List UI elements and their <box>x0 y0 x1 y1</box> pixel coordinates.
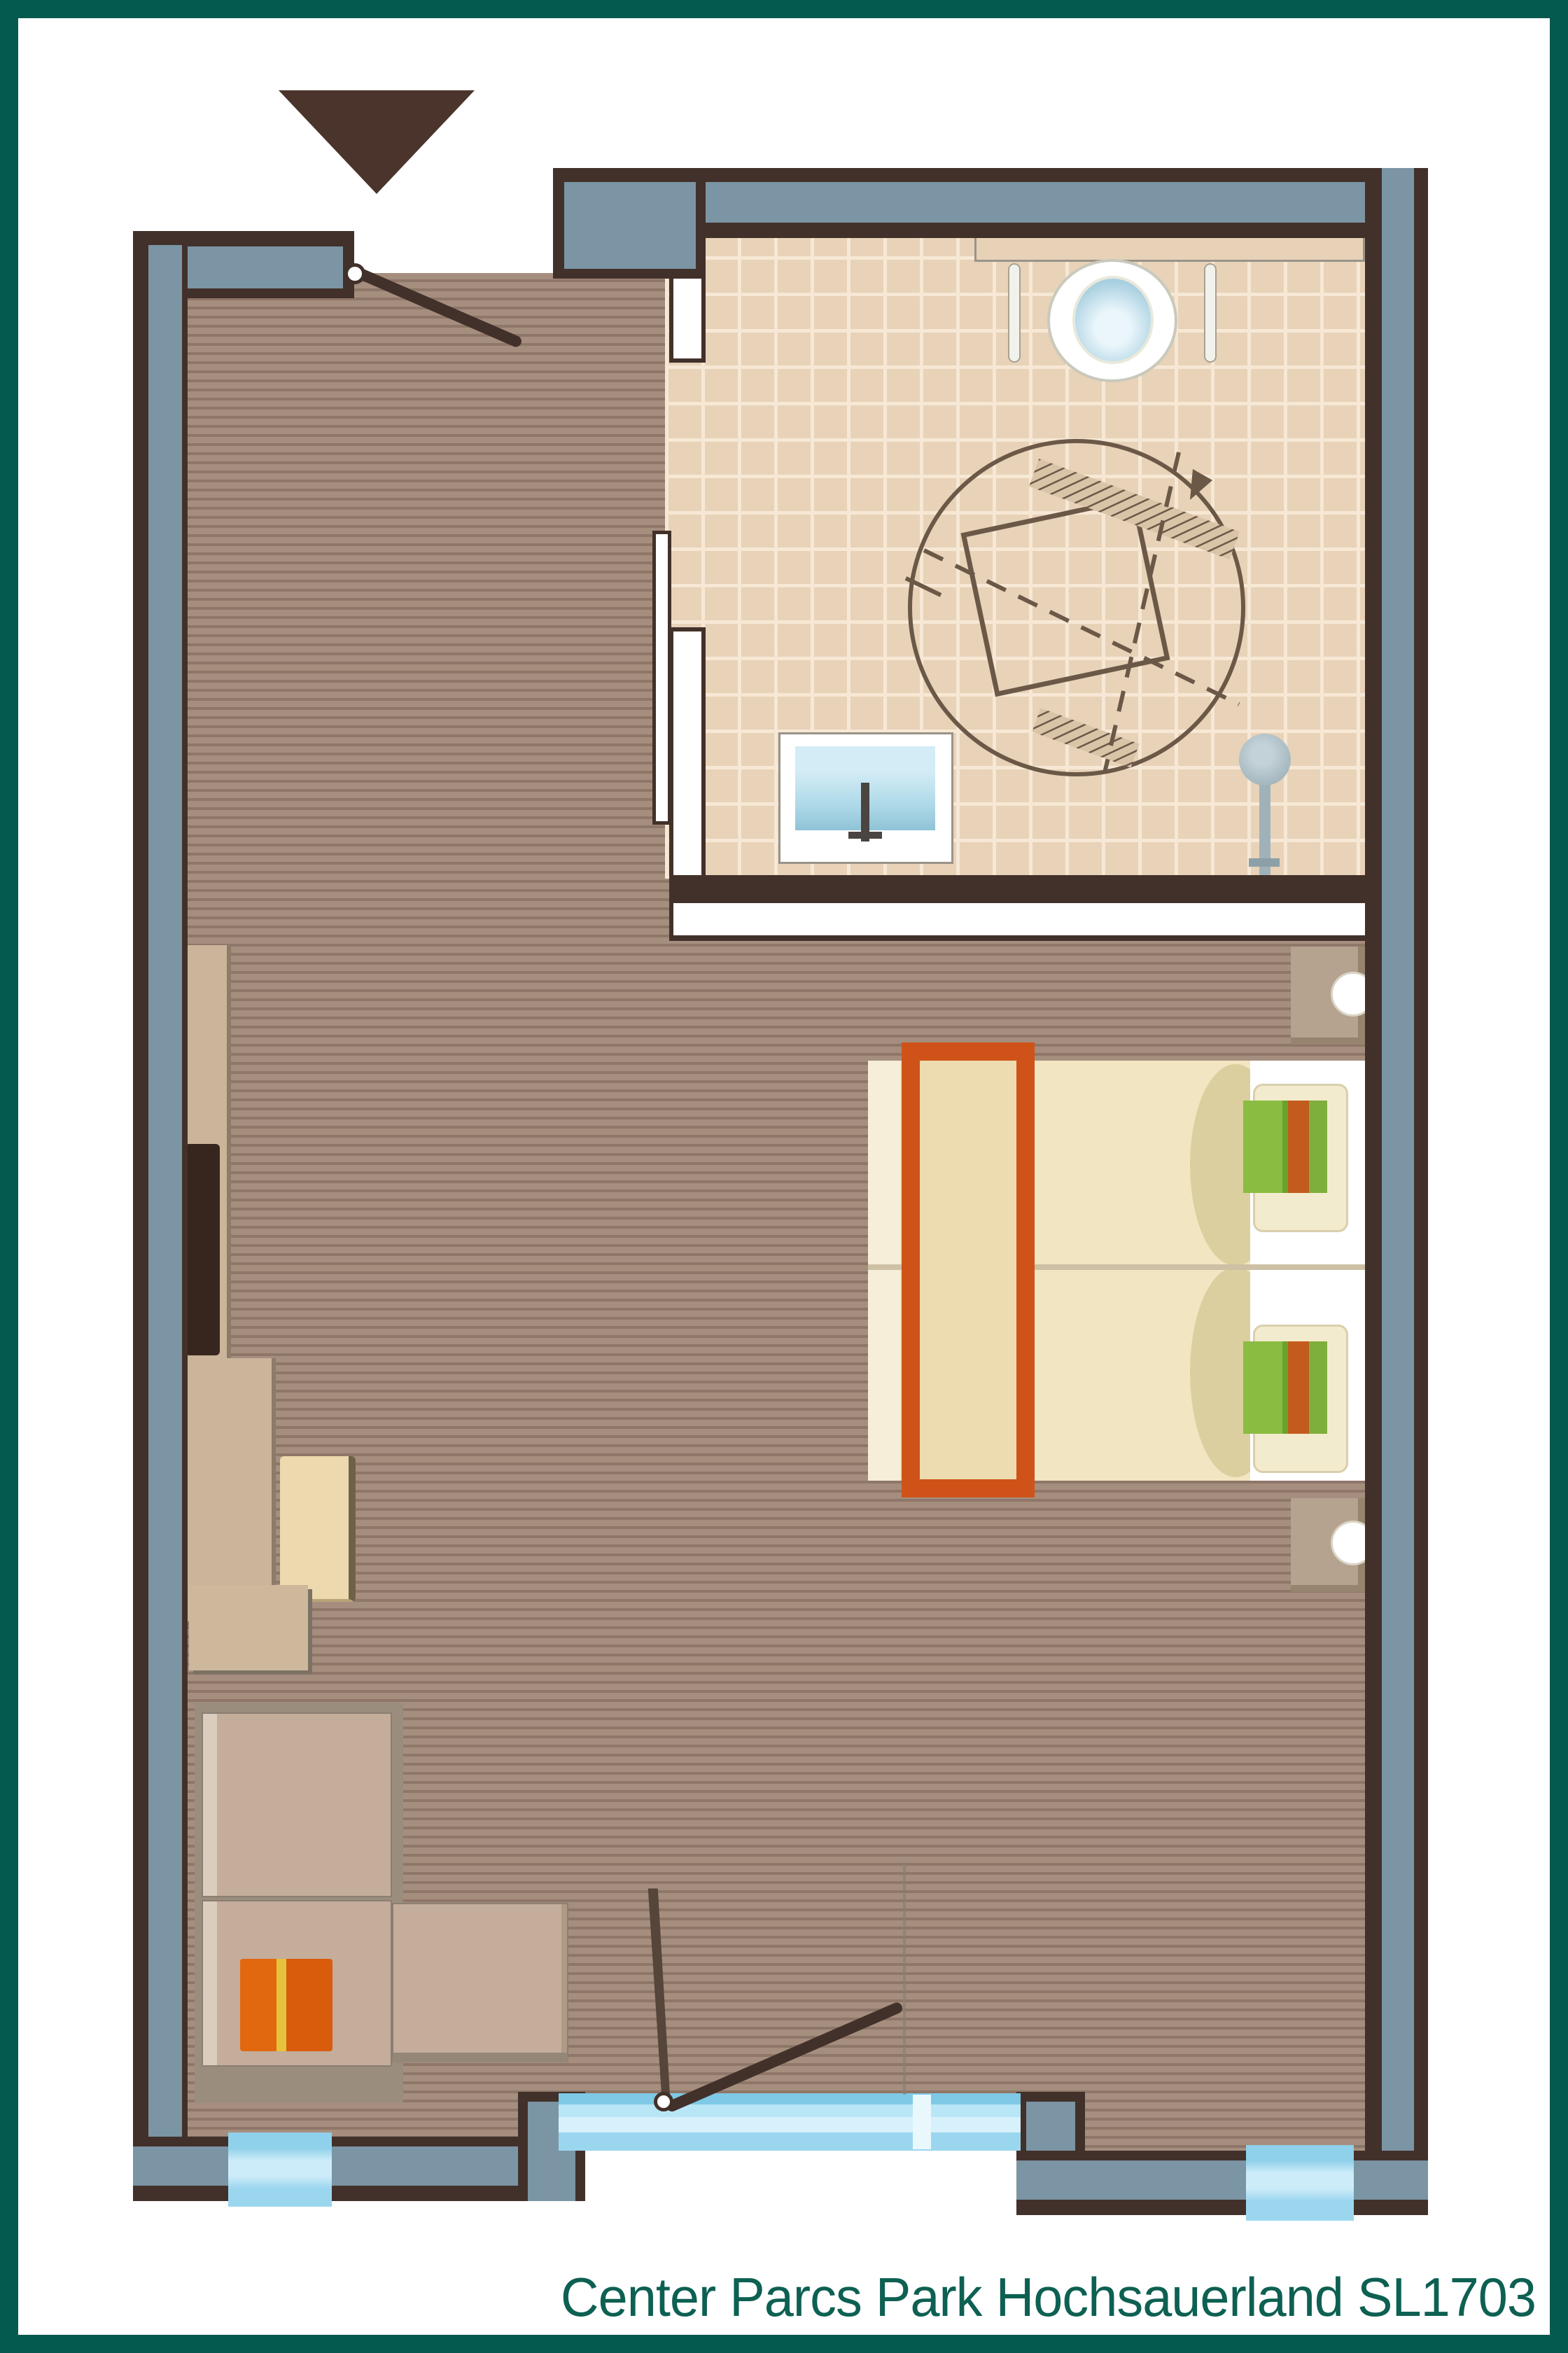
page-border-frame <box>0 0 1568 2353</box>
floorplan-page: Center Parcs Park Hochsauerland SL1703 <box>0 0 1568 2353</box>
